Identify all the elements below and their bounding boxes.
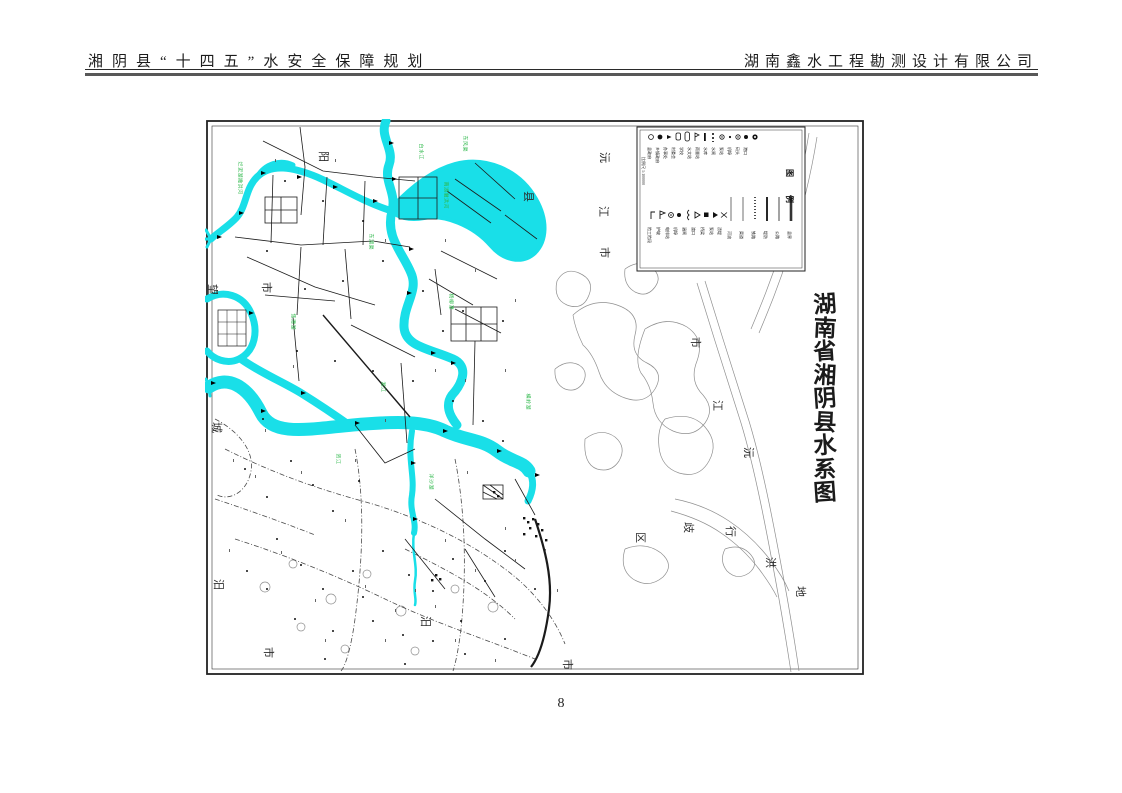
company-name: 湖南鑫水工程勘测设计有限公司: [744, 50, 1038, 71]
map-drawing: [205, 119, 865, 677]
water-layer: [205, 121, 545, 605]
header-rule-thick: [85, 73, 1038, 76]
legend-box: [637, 127, 805, 271]
water-system-map: 阳市望城汨市县沅江市市江沅区歧行洪地汨市烂泥湖撇洪河白水江东风渠南湖撇洪河东湖渠…: [205, 119, 865, 677]
map-title-vertical: 湖南省湘阴县水系图: [806, 293, 844, 505]
doc-title: 湘阴县“十四五”水安全保障规划: [88, 50, 431, 71]
report-page: { "header": { "left_title": "湘阴县“十四五”水安全…: [0, 0, 1122, 793]
header-rule-thin: [85, 69, 1038, 70]
town-clusters: [431, 491, 547, 581]
polder-island: [218, 310, 246, 346]
page-number: 8: [0, 696, 1122, 712]
